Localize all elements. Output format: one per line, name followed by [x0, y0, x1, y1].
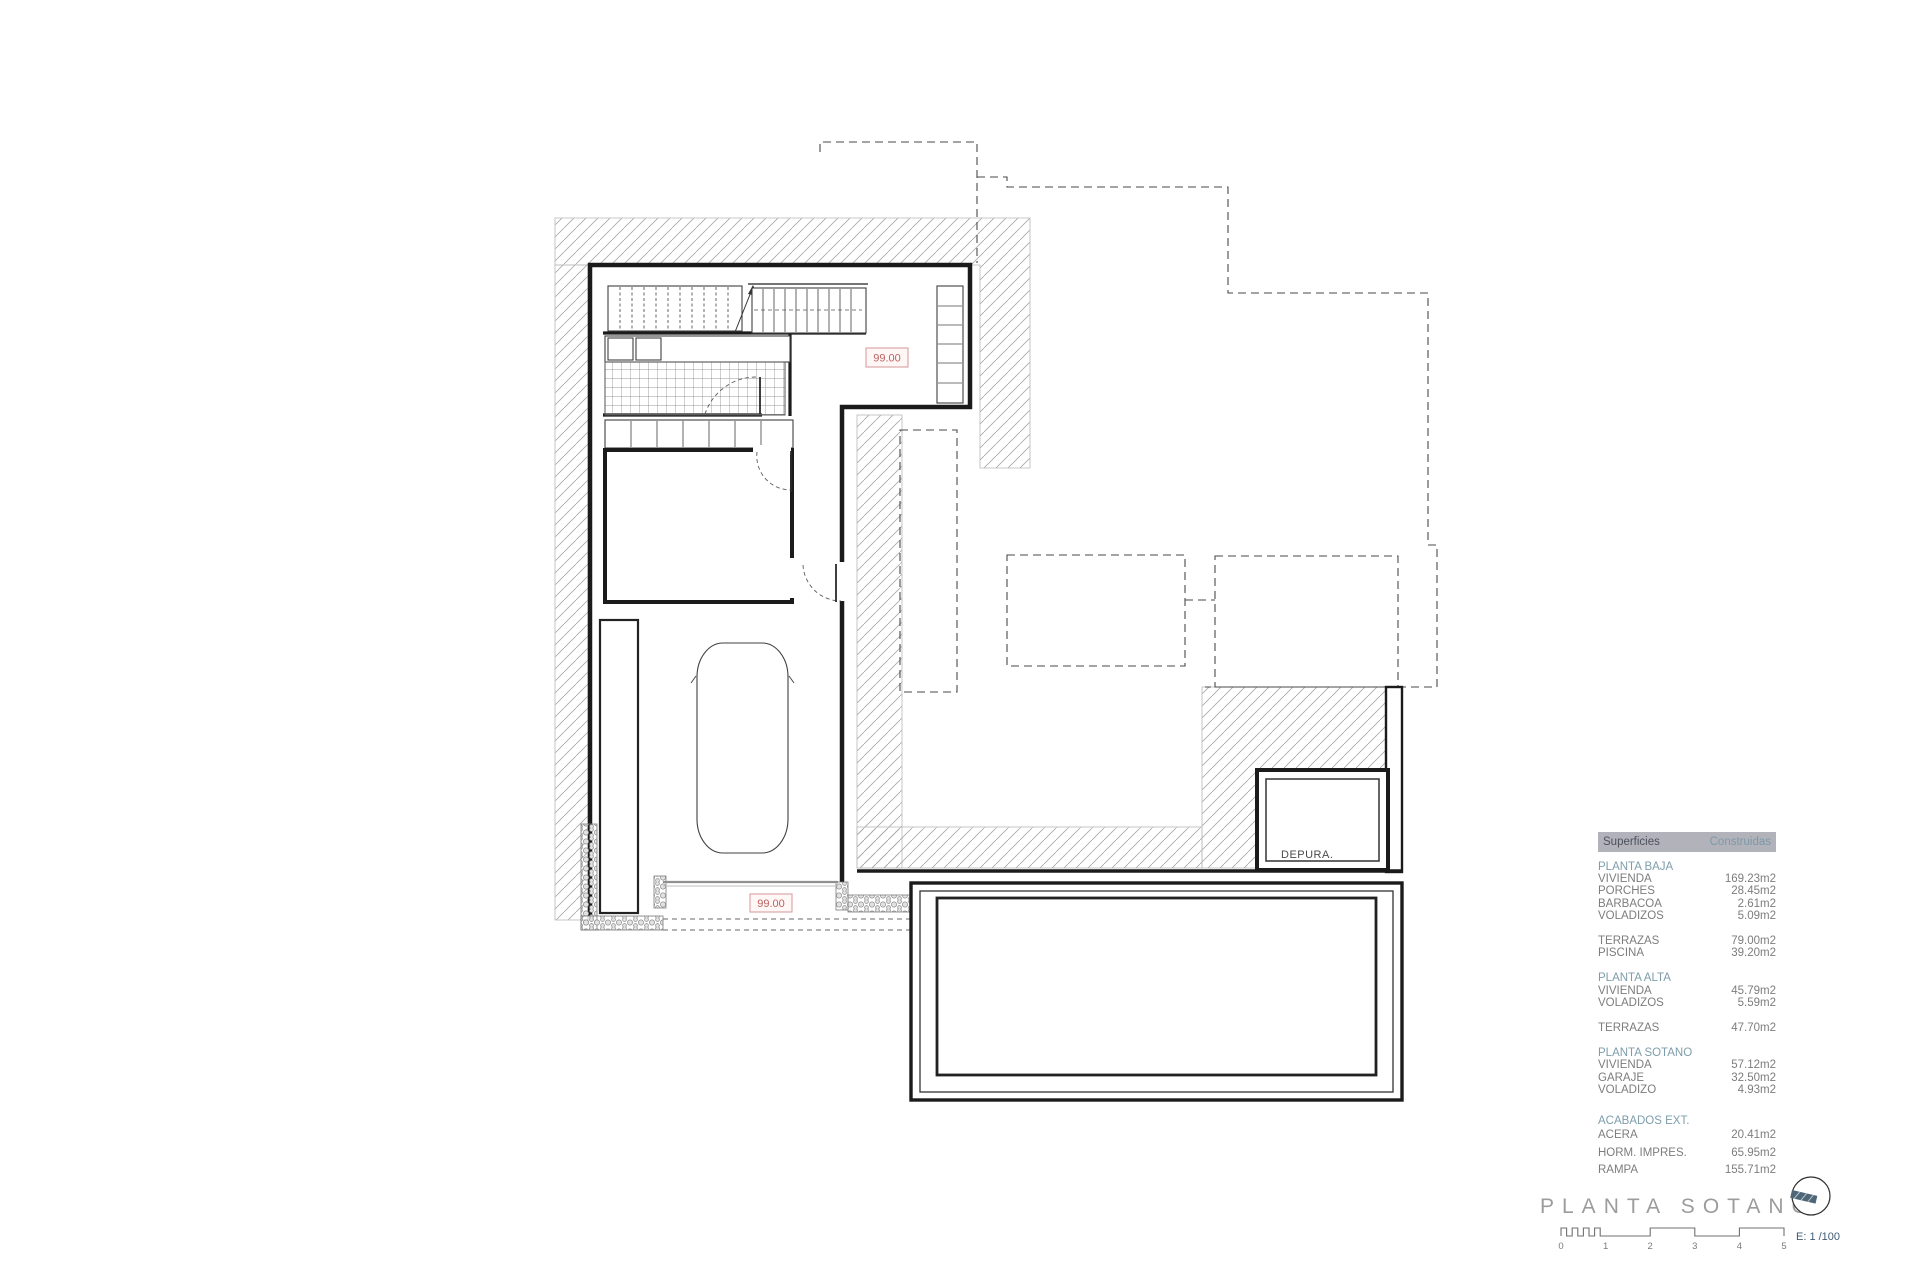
table-row: RAMPA155.71m2	[1598, 1162, 1776, 1180]
scale-tick: 1	[1603, 1241, 1608, 1252]
level-mark-value: 99.00	[757, 898, 785, 910]
scale-tick: 4	[1737, 1241, 1742, 1252]
depura-label: DEPURA.	[1281, 849, 1333, 861]
scale-tick: 5	[1781, 1241, 1786, 1252]
table-row: PORCHES28.45m2	[1598, 885, 1776, 897]
staircase	[608, 284, 868, 333]
level-mark: 99.00	[866, 348, 908, 367]
scale-ratio-label: E: 1 /100	[1796, 1231, 1840, 1243]
lightwell-strip	[600, 620, 638, 913]
table-row: BARBACOA2.61m2	[1598, 898, 1776, 910]
drawing-sheet: DEPURA. 99.00 99.00 PLANTA SOTANO 0 1 2 …	[0, 0, 1920, 1280]
storage-room	[605, 445, 796, 602]
table-row: TERRAZAS47.70m2	[1598, 1022, 1776, 1034]
table-row: VIVIENDA57.12m2	[1598, 1059, 1776, 1071]
table-section-acabados-ext: ACABADOS EXT.	[1598, 1115, 1776, 1127]
table-row: VIVIENDA169.23m2	[1598, 873, 1776, 885]
depura-room: DEPURA.	[1257, 770, 1388, 870]
table-section-planta-alta: PLANTA ALTA	[1598, 972, 1776, 984]
tiled-floor	[605, 362, 785, 415]
table-section-planta-baja: PLANTA BAJA	[1598, 861, 1776, 873]
scale-tick: 0	[1558, 1241, 1563, 1252]
sheet-title: PLANTA SOTANO	[1540, 1195, 1816, 1218]
car	[691, 643, 794, 853]
table-row: ACERA20.41m2	[1598, 1127, 1776, 1145]
scale-tick: 2	[1648, 1241, 1653, 1252]
scale-tick: 3	[1692, 1241, 1697, 1252]
area-table: Superficies Construidas PLANTA BAJA VIVI…	[1598, 832, 1776, 1180]
table-row: HORM. IMPRES.65.95m2	[1598, 1145, 1776, 1163]
pool	[911, 883, 1402, 1100]
table-row: PISCINA39.20m2	[1598, 947, 1776, 959]
level-mark-value: 99.00	[873, 353, 901, 365]
table-col-superficies: Superficies	[1603, 836, 1660, 848]
wall-shelf-column	[937, 286, 963, 403]
area-table-header: Superficies Construidas	[1598, 832, 1776, 852]
table-row: GARAJE32.50m2	[1598, 1072, 1776, 1084]
garage-door	[663, 882, 838, 886]
closet-row	[605, 336, 790, 362]
scale-bar: 0 1 2 3 4 5 E: 1 /100	[1558, 1228, 1840, 1252]
table-section-planta-sotano: PLANTA SOTANO	[1598, 1047, 1776, 1059]
table-row: VIVIENDA45.79m2	[1598, 985, 1776, 997]
table-row: VOLADIZOS5.09m2	[1598, 910, 1776, 922]
table-row: TERRAZAS79.00m2	[1598, 935, 1776, 947]
level-mark: 99.00	[750, 894, 792, 912]
table-row: VOLADIZOS5.59m2	[1598, 997, 1776, 1009]
table-col-construidas: Construidas	[1710, 836, 1771, 848]
table-row: VOLADIZO4.93m2	[1598, 1084, 1776, 1096]
